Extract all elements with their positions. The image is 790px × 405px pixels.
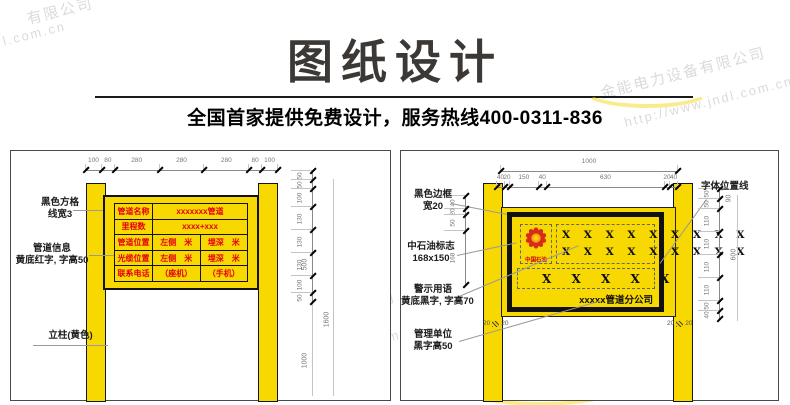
placeholder-text-row: X X X X X X X X X xyxy=(562,227,654,244)
label-post: 立柱(黄色) xyxy=(33,330,108,342)
dim-label: 20 xyxy=(501,320,508,327)
post-gap-dimension: 20 20 xyxy=(667,320,692,327)
dim-segment: 100 xyxy=(85,164,101,170)
dim-total-label: 1600 xyxy=(323,312,330,328)
dim-label: 110 xyxy=(704,284,711,294)
right-top-dimension-line: 40 20 150 40 630 20 40 xyxy=(496,175,678,188)
dim-end-tick xyxy=(677,165,678,171)
text-position-box: X X X X X X X X X X X X X X X X X X xyxy=(556,224,655,264)
label-text: 字体位置线 xyxy=(701,181,749,192)
label-black-border: 黑色边框 宽20 xyxy=(407,189,459,214)
dim-label: 100 xyxy=(88,157,99,164)
label-warning-words: 警示用语 黄底黑字, 字高70 xyxy=(401,284,465,309)
dim-offset-label: 90 xyxy=(725,195,732,203)
table-cell: 联系电话 xyxy=(115,266,153,282)
label-text: 宽20 xyxy=(423,201,443,212)
label-font-position-line: 字体位置线 xyxy=(701,181,749,193)
dim-label: 20 xyxy=(503,174,510,181)
dim-segment: 630 xyxy=(546,181,664,187)
table-cell: （手机） xyxy=(200,266,248,282)
warning-text-box: X X X X X xyxy=(517,268,655,289)
dim-segment: 150 xyxy=(509,181,538,187)
dimension-extension-line xyxy=(312,301,313,396)
label-pipeline-info: 管道信息 黄底红字, 字高50 xyxy=(11,243,93,268)
dim-label: 80 xyxy=(104,157,111,164)
label-text: 线宽3 xyxy=(48,209,72,220)
hatch-marks xyxy=(676,321,683,327)
post-gap-dimension: 20 20 xyxy=(483,320,508,327)
label-petrochina-logo: 中石油标志 168x150 xyxy=(401,241,461,266)
left-sign-post-right xyxy=(258,183,278,402)
right-top-total-dimension: 1000 xyxy=(500,159,678,172)
dim-label: 100 xyxy=(264,157,275,164)
table-cell: xxxx+xxx xyxy=(153,219,248,235)
dim-label: 50 xyxy=(450,219,457,226)
hatch-marks xyxy=(492,321,499,327)
table-cell: 埋深 米 xyxy=(200,235,248,251)
dim-total-label: 1000 xyxy=(301,353,308,369)
dim-label: 100 xyxy=(297,279,304,290)
pipeline-sign-board: 管道名称 xxxxxxx管道 里程数 xxxx+xxx 管道位置 左侧 米 埋深… xyxy=(103,195,259,290)
dim-label: 130 xyxy=(297,236,304,247)
warning-sign-board: 中国石油 X X X X X X X X X X X X X X X X X X… xyxy=(501,207,676,317)
dim-segment: 280 xyxy=(203,164,248,170)
dim-label: 20 xyxy=(667,320,674,327)
watermark: 有限公司 xyxy=(24,0,95,29)
label-black-grid: 黑色方格 线宽3 xyxy=(27,197,93,222)
dim-segment: 168 xyxy=(466,231,477,285)
dimension-extension-line xyxy=(333,179,334,396)
table-cell: xxxxxxx管道 xyxy=(153,204,248,220)
dim-total-label: 600 xyxy=(730,249,737,261)
label-text: 黑字高50 xyxy=(413,341,452,352)
dim-label: 280 xyxy=(176,157,187,164)
dim-total-label: 500 xyxy=(301,259,308,271)
dim-segment: 100 xyxy=(261,164,277,170)
dim-label: 50 xyxy=(704,200,711,207)
dim-label: 280 xyxy=(131,157,142,164)
dim-segment: 1000 xyxy=(500,165,677,171)
dim-segment: 80 xyxy=(101,164,114,170)
dim-label: 150 xyxy=(518,174,529,181)
dim-label: 110 xyxy=(704,238,711,248)
dim-end-tick xyxy=(677,181,678,187)
dim-label: 40 xyxy=(539,174,546,181)
label-text: 黄底黑字, 字高70 xyxy=(401,296,474,307)
table-cell: 管道名称 xyxy=(115,204,153,220)
table-cell: 管道位置 xyxy=(115,235,153,251)
dim-label: 110 xyxy=(704,261,711,271)
right-drawing-panel: 1000 40 20 150 40 630 20 40 xyxy=(400,150,779,401)
dim-label: 1000 xyxy=(582,158,596,165)
label-text: 警示用语 xyxy=(414,284,452,295)
label-text: 立柱(黄色) xyxy=(48,330,92,341)
left-top-dimension-line: 100 80 280 280 280 80 100 xyxy=(85,158,278,171)
dim-label: 80 xyxy=(252,157,259,164)
page-subtitle: 全国首家提供免费设计，服务热线400-0311-836 xyxy=(0,103,790,130)
table-cell: （座机） xyxy=(153,266,201,282)
right-sign-post-right xyxy=(673,183,693,402)
dim-label: 40 xyxy=(670,174,677,181)
table-cell: 里程数 xyxy=(115,219,153,235)
dim-label: 100 xyxy=(297,193,304,204)
petrochina-logo-icon xyxy=(523,226,549,250)
dim-label: 280 xyxy=(221,157,232,164)
dim-label: 130 xyxy=(297,213,304,224)
black-border-frame: 中国石油 X X X X X X X X X X X X X X X X X X… xyxy=(507,212,664,312)
dim-segment: 80 xyxy=(248,164,261,170)
dim-label: 50 xyxy=(297,294,304,301)
dim-segment: 40 xyxy=(538,181,546,187)
dim-label: 40 xyxy=(704,311,711,318)
right-sign-post-left xyxy=(483,183,503,402)
table-cell: 光缆位置 xyxy=(115,250,153,266)
label-text: 中石油标志 xyxy=(407,241,455,252)
label-text: 黑色边框 xyxy=(414,189,452,200)
left-drawing-panel: 100 80 280 280 280 80 100 管道名称 xxxxxxx管道… xyxy=(10,150,391,401)
table-cell: 左侧 米 xyxy=(153,235,201,251)
title-divider xyxy=(95,96,693,98)
right-side-dimension-line: 50 50 110 110 110 110 50 40 xyxy=(719,189,731,319)
label-text: 管道信息 xyxy=(33,243,71,254)
table-cell: 埋深 米 xyxy=(200,250,248,266)
right-left-dimension-line: 40 20 50 168 xyxy=(465,196,477,285)
label-text: 黄底红字, 字高50 xyxy=(16,255,89,266)
dim-end-tick xyxy=(277,164,278,170)
dim-label: 20 xyxy=(685,320,692,327)
left-side-dimension-line: 50 50 100 130 130 130 100 50 xyxy=(312,171,324,302)
page-title: 图纸设计 xyxy=(0,26,790,92)
leader-line xyxy=(33,345,108,346)
dim-segment: 280 xyxy=(114,164,159,170)
placeholder-text-row: X X X X X xyxy=(542,271,654,288)
table-cell: 左侧 米 xyxy=(153,250,201,266)
label-text: 管理单位 xyxy=(414,329,452,340)
dim-segment: 280 xyxy=(159,164,204,170)
label-text: 黑色方格 xyxy=(41,197,79,208)
dim-label: 50 xyxy=(704,302,711,309)
label-management-unit: 管理单位 黑字高50 xyxy=(405,329,461,354)
dim-label: 630 xyxy=(600,174,611,181)
pipeline-info-table: 管道名称 xxxxxxx管道 里程数 xxxx+xxx 管道位置 左侧 米 埋深… xyxy=(114,203,248,282)
label-text: 168x150 xyxy=(413,253,450,264)
dim-label: 20 xyxy=(483,320,490,327)
dim-label: 110 xyxy=(704,215,711,225)
